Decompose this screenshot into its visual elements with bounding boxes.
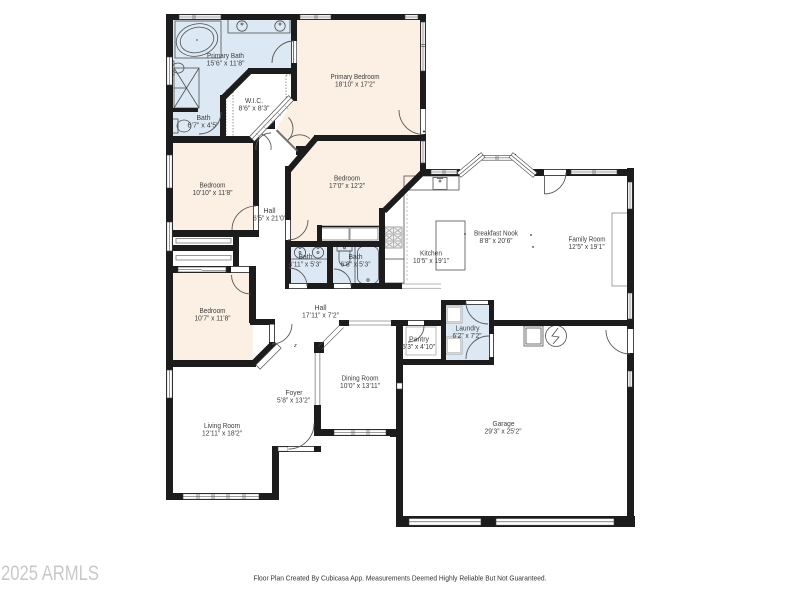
svg-text:5’8” x 13’2”: 5’8” x 13’2” xyxy=(277,396,311,405)
svg-text:6’7” x 4’5”: 6’7” x 4’5” xyxy=(188,121,220,130)
svg-text:4’11” x 5’3”: 4’11” x 5’3” xyxy=(289,260,323,269)
svg-text:z: z xyxy=(293,343,297,349)
svg-text:6’8” x 5’3”: 6’8” x 5’3” xyxy=(341,260,372,269)
svg-text:6’5” x 21’0”: 6’5” x 21’0” xyxy=(253,214,287,223)
svg-text:18’10” x 17’2”: 18’10” x 17’2” xyxy=(335,80,376,89)
svg-text:10’0” x 13’11”: 10’0” x 13’11” xyxy=(340,381,381,390)
svg-text:10’7” x 11’8”: 10’7” x 11’8” xyxy=(195,314,232,323)
svg-text:6’2” x 7’2”: 6’2” x 7’2” xyxy=(453,331,483,340)
svg-text:12’11” x 18’2”: 12’11” x 18’2” xyxy=(202,429,243,438)
svg-text:29’3” x 25’2”: 29’3” x 25’2” xyxy=(485,427,523,436)
svg-text:Floor Plan Created By Cubicasa: Floor Plan Created By Cubicasa App. Meas… xyxy=(254,574,547,583)
svg-text:15’6” x 11’8”: 15’6” x 11’8” xyxy=(207,59,246,68)
svg-text:10’5” x 19’1”: 10’5” x 19’1” xyxy=(413,256,450,265)
svg-text:8’8” x 20’6”: 8’8” x 20’6” xyxy=(480,236,514,245)
svg-text:12’5” x 19’1”: 12’5” x 19’1” xyxy=(569,242,606,251)
svg-text:2025 ARMLS: 2025 ARMLS xyxy=(1,562,99,585)
svg-text:17’11” x 7’2”: 17’11” x 7’2” xyxy=(302,311,340,320)
svg-text:8’6” x 8’3”: 8’6” x 8’3” xyxy=(239,104,271,113)
svg-text:17’0” x 12’2”: 17’0” x 12’2” xyxy=(329,181,366,190)
svg-text:10’10” x 11’8”: 10’10” x 11’8” xyxy=(193,188,234,197)
svg-text:5’3” x 4’10”: 5’3” x 4’10” xyxy=(402,342,436,351)
